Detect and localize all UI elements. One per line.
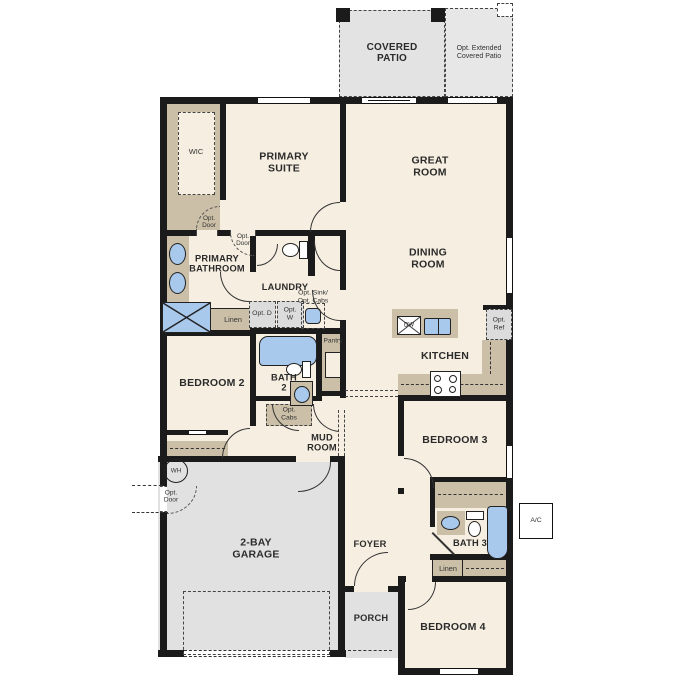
bedroom2-label: BEDROOM 2	[157, 378, 267, 390]
wall	[316, 391, 345, 396]
window	[506, 238, 513, 293]
closet-rod	[438, 494, 503, 495]
bedroom3-label: BEDROOM 3	[400, 435, 510, 447]
linen-label: Linen	[224, 316, 242, 324]
porch-label: PORCH	[346, 613, 396, 623]
opt-cab-dash	[345, 390, 398, 397]
opt-cabs-label: Opt. Cabs	[277, 406, 301, 421]
sink-icon	[169, 272, 186, 294]
wic-label: WIC	[189, 148, 204, 156]
ac-label: A/C	[530, 517, 541, 525]
patio-post	[336, 8, 350, 22]
great-room-label: GREAT ROOM	[405, 155, 455, 179]
toilet-icon	[282, 241, 309, 259]
opt-door-dash	[132, 485, 162, 486]
bath3-label: BATH 3	[447, 538, 493, 548]
wall	[220, 104, 226, 200]
sliding-door-rail	[368, 100, 410, 101]
opt-dryer-label: Opt. D	[252, 310, 272, 318]
opt-door-dash	[132, 512, 168, 513]
toilet-icon	[466, 511, 484, 538]
garage-label: 2-BAY GARAGE	[221, 537, 291, 561]
window	[440, 668, 478, 675]
counter-dash	[490, 342, 491, 374]
opt-door-wic-label: Opt. Door	[197, 215, 221, 229]
door-opening	[340, 290, 346, 320]
pantry-label: Pantry	[323, 337, 342, 344]
patio-notch	[497, 3, 513, 17]
dishwasher-label: DW	[404, 323, 414, 330]
kitchen-sink-icon	[424, 318, 451, 335]
wall	[506, 97, 513, 675]
water-heater-label: WH	[171, 467, 182, 474]
garage-parking-outline	[183, 591, 330, 655]
opt-sink-cabs-label: Opt. Sink/ Opt. Cabs	[292, 289, 334, 304]
window	[258, 97, 310, 104]
door-opening	[340, 202, 346, 230]
shelf-dash	[466, 568, 504, 569]
bedroom3-closet-shelf	[435, 482, 506, 508]
opt-door-garage-label: Opt. Door	[158, 490, 184, 505]
shower-icon	[162, 302, 211, 333]
wall	[430, 477, 506, 482]
opt-extended-patio-label: Opt. Extended Covered Patio	[450, 45, 508, 61]
patio-post	[431, 8, 445, 22]
bedroom4-label: BEDROOM 4	[398, 622, 508, 634]
closet-rod	[170, 448, 225, 449]
kitchen-label: KITCHEN	[400, 351, 490, 363]
door-opening	[250, 426, 256, 456]
wall	[338, 456, 345, 657]
primary-bathroom-label: PRIMARY BATHROOM	[182, 254, 252, 275]
primary-suite-label: PRIMARY SUITE	[253, 151, 315, 175]
wall	[398, 488, 404, 494]
linen-bath3-label: Linen	[439, 565, 457, 573]
bedroom2-closet-shelf	[167, 441, 228, 457]
opt-washer-label: Opt. W	[280, 306, 300, 321]
door-opening	[354, 586, 388, 592]
mud-room-label: MUD ROOM	[302, 433, 342, 454]
sink-icon	[441, 516, 460, 530]
bath2-label: BATH 2	[267, 373, 301, 394]
foyer-label: FOYER	[345, 539, 395, 549]
opt-ref-label: Opt. Ref	[488, 316, 510, 331]
stove-icon	[430, 371, 461, 397]
wall	[340, 104, 346, 204]
window	[506, 446, 513, 478]
wall	[340, 236, 346, 290]
window	[448, 97, 497, 104]
wall	[160, 97, 167, 657]
dining-room-label: DINING ROOM	[403, 247, 453, 271]
covered-patio-label: COVERED PATIO	[356, 42, 428, 64]
wall	[398, 401, 404, 456]
porch-edge-dash	[348, 650, 392, 651]
opt-door-opening	[196, 230, 218, 236]
floor-plan: DW COVERED PATIO Opt. Extended Covered P…	[0, 0, 687, 687]
bathtub-icon	[487, 506, 508, 559]
opt-door-suite-label: Opt. Door	[231, 233, 255, 247]
closet-opening	[189, 430, 206, 435]
